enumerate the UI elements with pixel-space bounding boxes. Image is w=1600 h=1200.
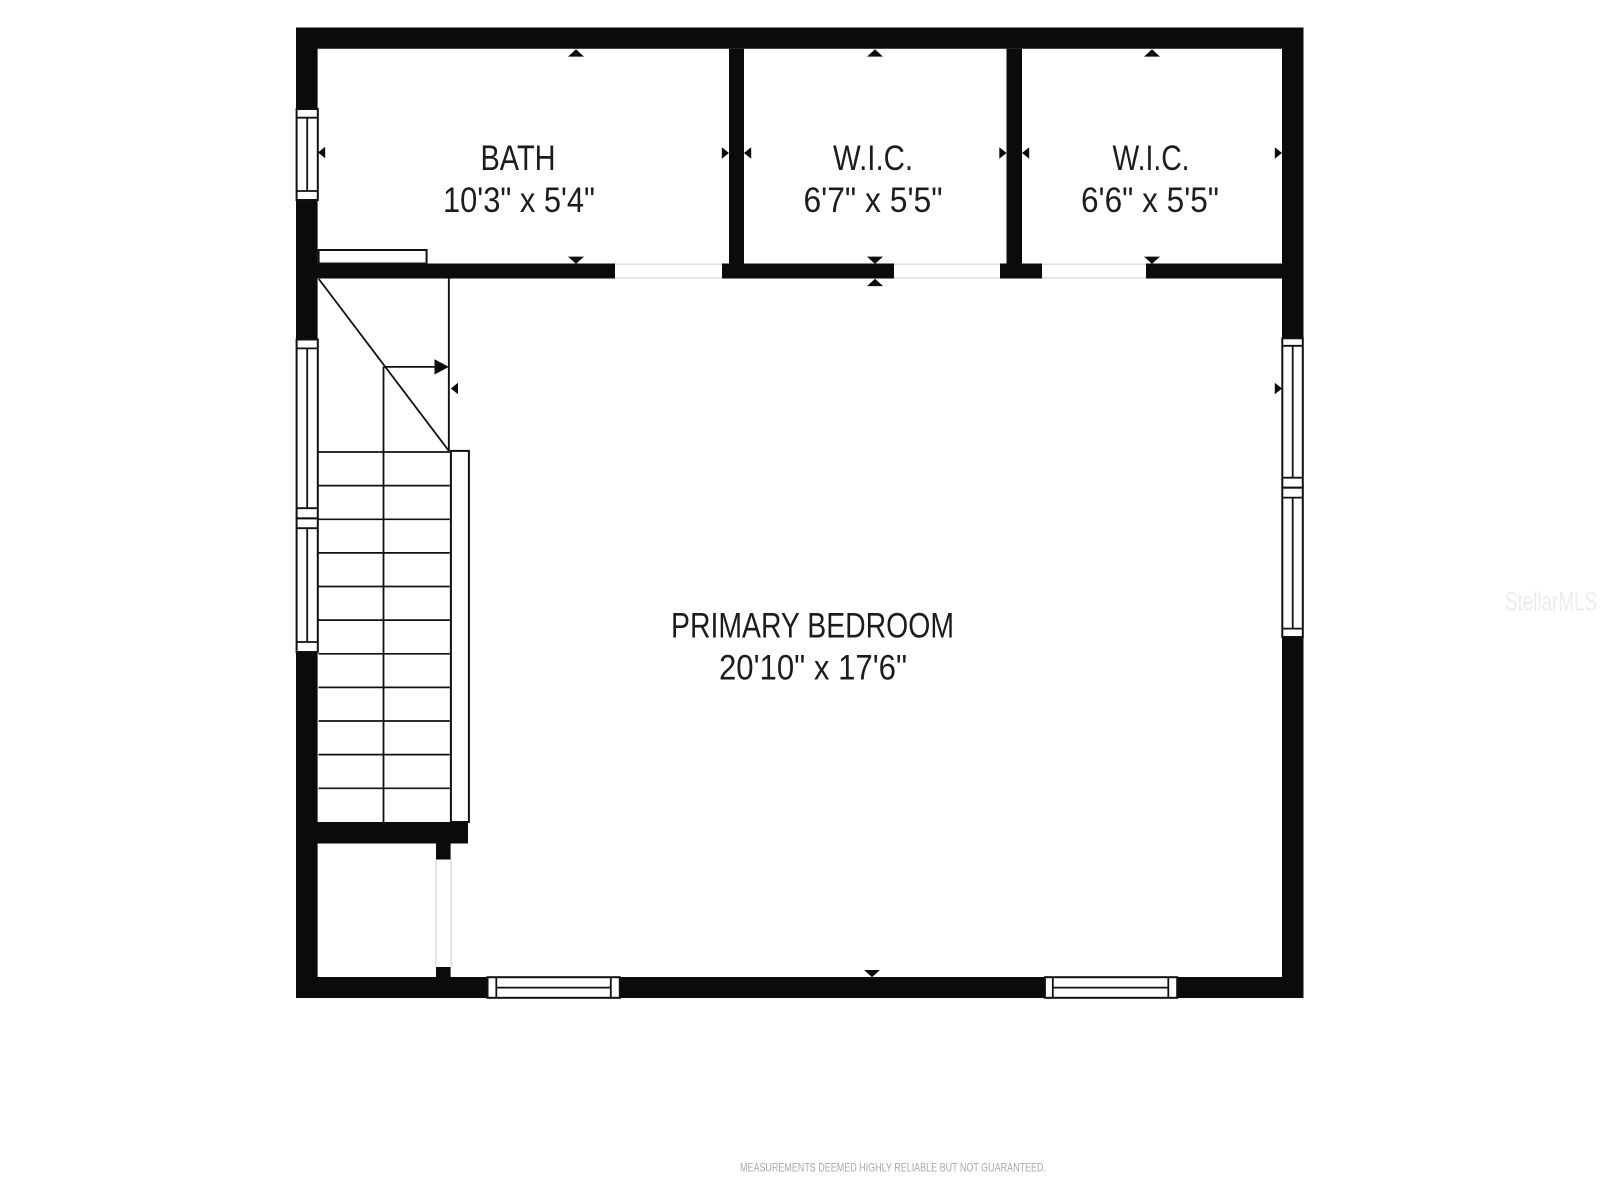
svg-text:W.I.C.: W.I.C.: [1113, 139, 1190, 178]
svg-text:BATH: BATH: [481, 139, 556, 178]
svg-text:6'6" x 5'5": 6'6" x 5'5": [1081, 181, 1219, 220]
svg-text:PRIMARY BEDROOM: PRIMARY BEDROOM: [671, 607, 954, 646]
svg-text:6'7" x 5'5": 6'7" x 5'5": [804, 181, 943, 220]
svg-text:20'10" x 17'6": 20'10" x 17'6": [719, 649, 907, 688]
svg-text:10'3" x 5'4": 10'3" x 5'4": [443, 181, 595, 220]
svg-text:W.I.C.: W.I.C.: [833, 139, 913, 178]
svg-text:MEASUREMENTS DEEMED HIGHLY REL: MEASUREMENTS DEEMED HIGHLY RELIABLE BUT …: [740, 1161, 1046, 1175]
svg-text:StellarMLS: StellarMLS: [1505, 587, 1597, 617]
